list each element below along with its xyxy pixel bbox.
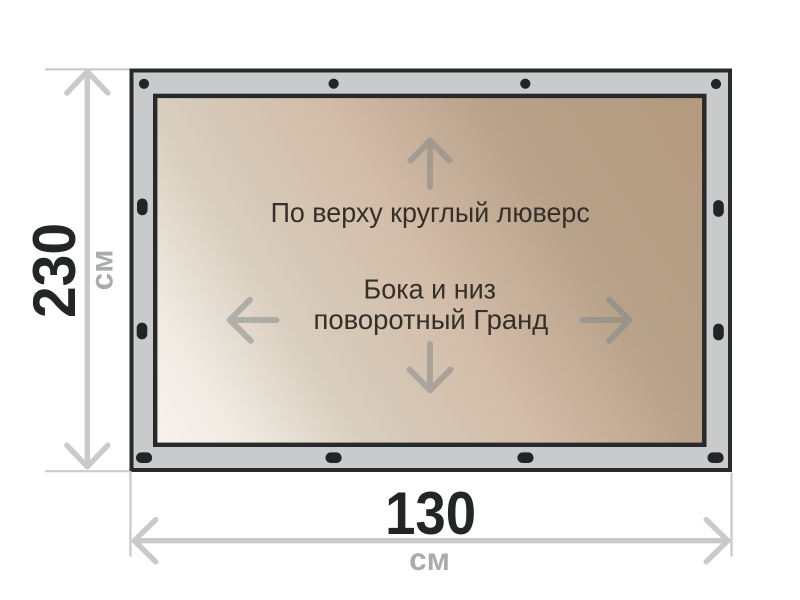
svg-text:По верху круглый люверс: По верху круглый люверс [271, 197, 590, 228]
svg-text:см: см [84, 250, 120, 291]
svg-text:см: см [409, 541, 450, 577]
svg-text:Бока и низ: Бока и низ [364, 274, 497, 305]
svg-text:130: 130 [385, 480, 476, 547]
svg-text:поворотный Гранд: поворотный Гранд [314, 304, 549, 335]
svg-text:230: 230 [21, 223, 88, 318]
